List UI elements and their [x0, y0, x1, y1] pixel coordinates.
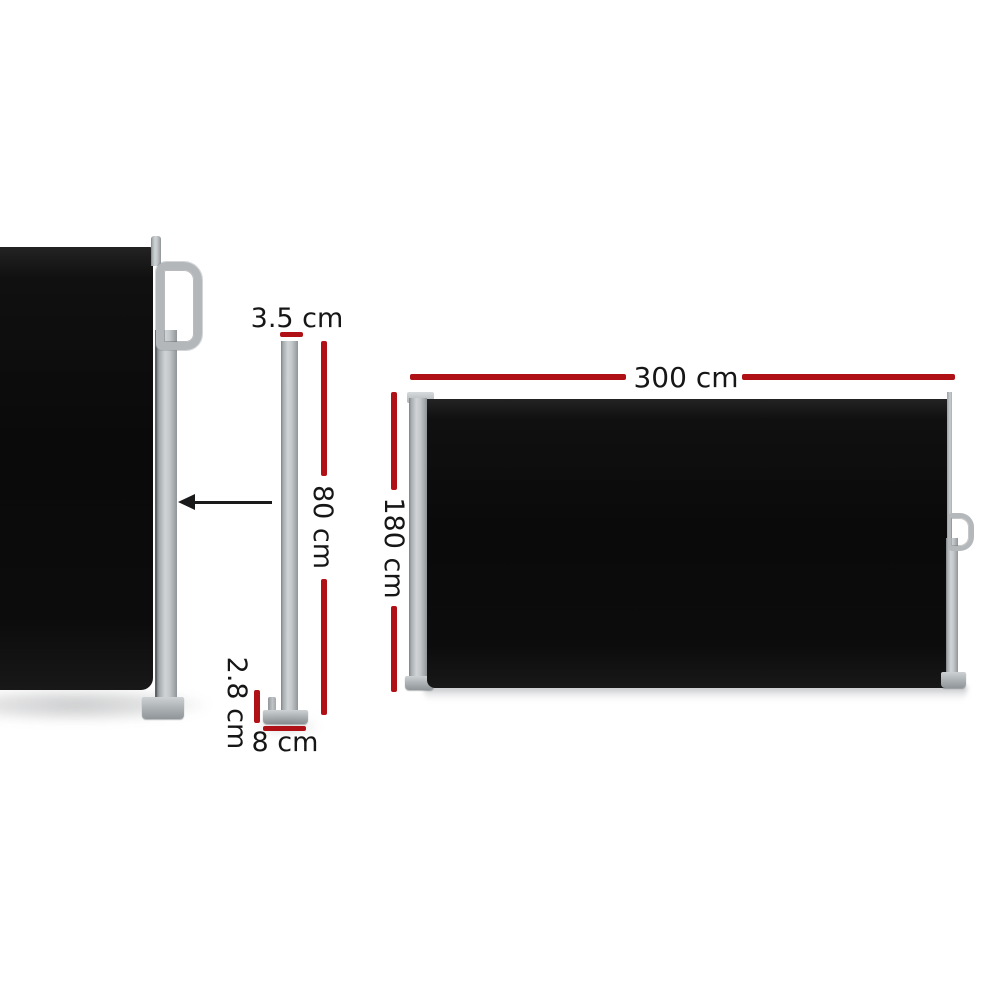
cassette-post	[409, 398, 427, 688]
retracted-fabric-panel	[0, 247, 153, 690]
post-top-width-label: 3.5 cm	[249, 304, 345, 332]
post	[281, 341, 298, 712]
awning-width-line-right	[742, 374, 955, 380]
retracted-pole-top	[151, 236, 161, 266]
leading-pole-foot	[941, 672, 966, 688]
post-base-width-label: 8 cm	[253, 729, 317, 755]
grab-handle-icon	[156, 262, 202, 350]
retract-arrow-shaft	[193, 501, 272, 504]
awning-height-line-upper	[391, 392, 397, 490]
leading-pole-lower	[946, 538, 958, 678]
post-base-height-label: 2.8 cm	[223, 655, 251, 751]
retract-arrow-icon	[178, 494, 195, 510]
pull-handle-icon	[948, 513, 974, 551]
extended-fabric-panel	[427, 399, 947, 688]
post-height-label: 80 cm	[309, 482, 337, 572]
awning-height-line-lower	[391, 606, 397, 692]
awning-height-label: 180 cm	[380, 496, 408, 600]
awning-width-label: 300 cm	[628, 364, 744, 392]
retracted-pole	[155, 330, 177, 700]
post-base-height-line	[254, 690, 260, 723]
floor-shadow-extended	[424, 686, 967, 701]
awning-dimension-diagram: 3.5 cm 80 cm 2.8 cm 8 cm 300 cm 180 cm	[0, 0, 1000, 1000]
post-height-line-upper	[321, 341, 327, 476]
post-height-line-lower	[321, 579, 327, 715]
post-top-width-line	[280, 332, 303, 337]
awning-width-line-left	[410, 374, 626, 380]
retracted-base-plate	[142, 697, 184, 719]
